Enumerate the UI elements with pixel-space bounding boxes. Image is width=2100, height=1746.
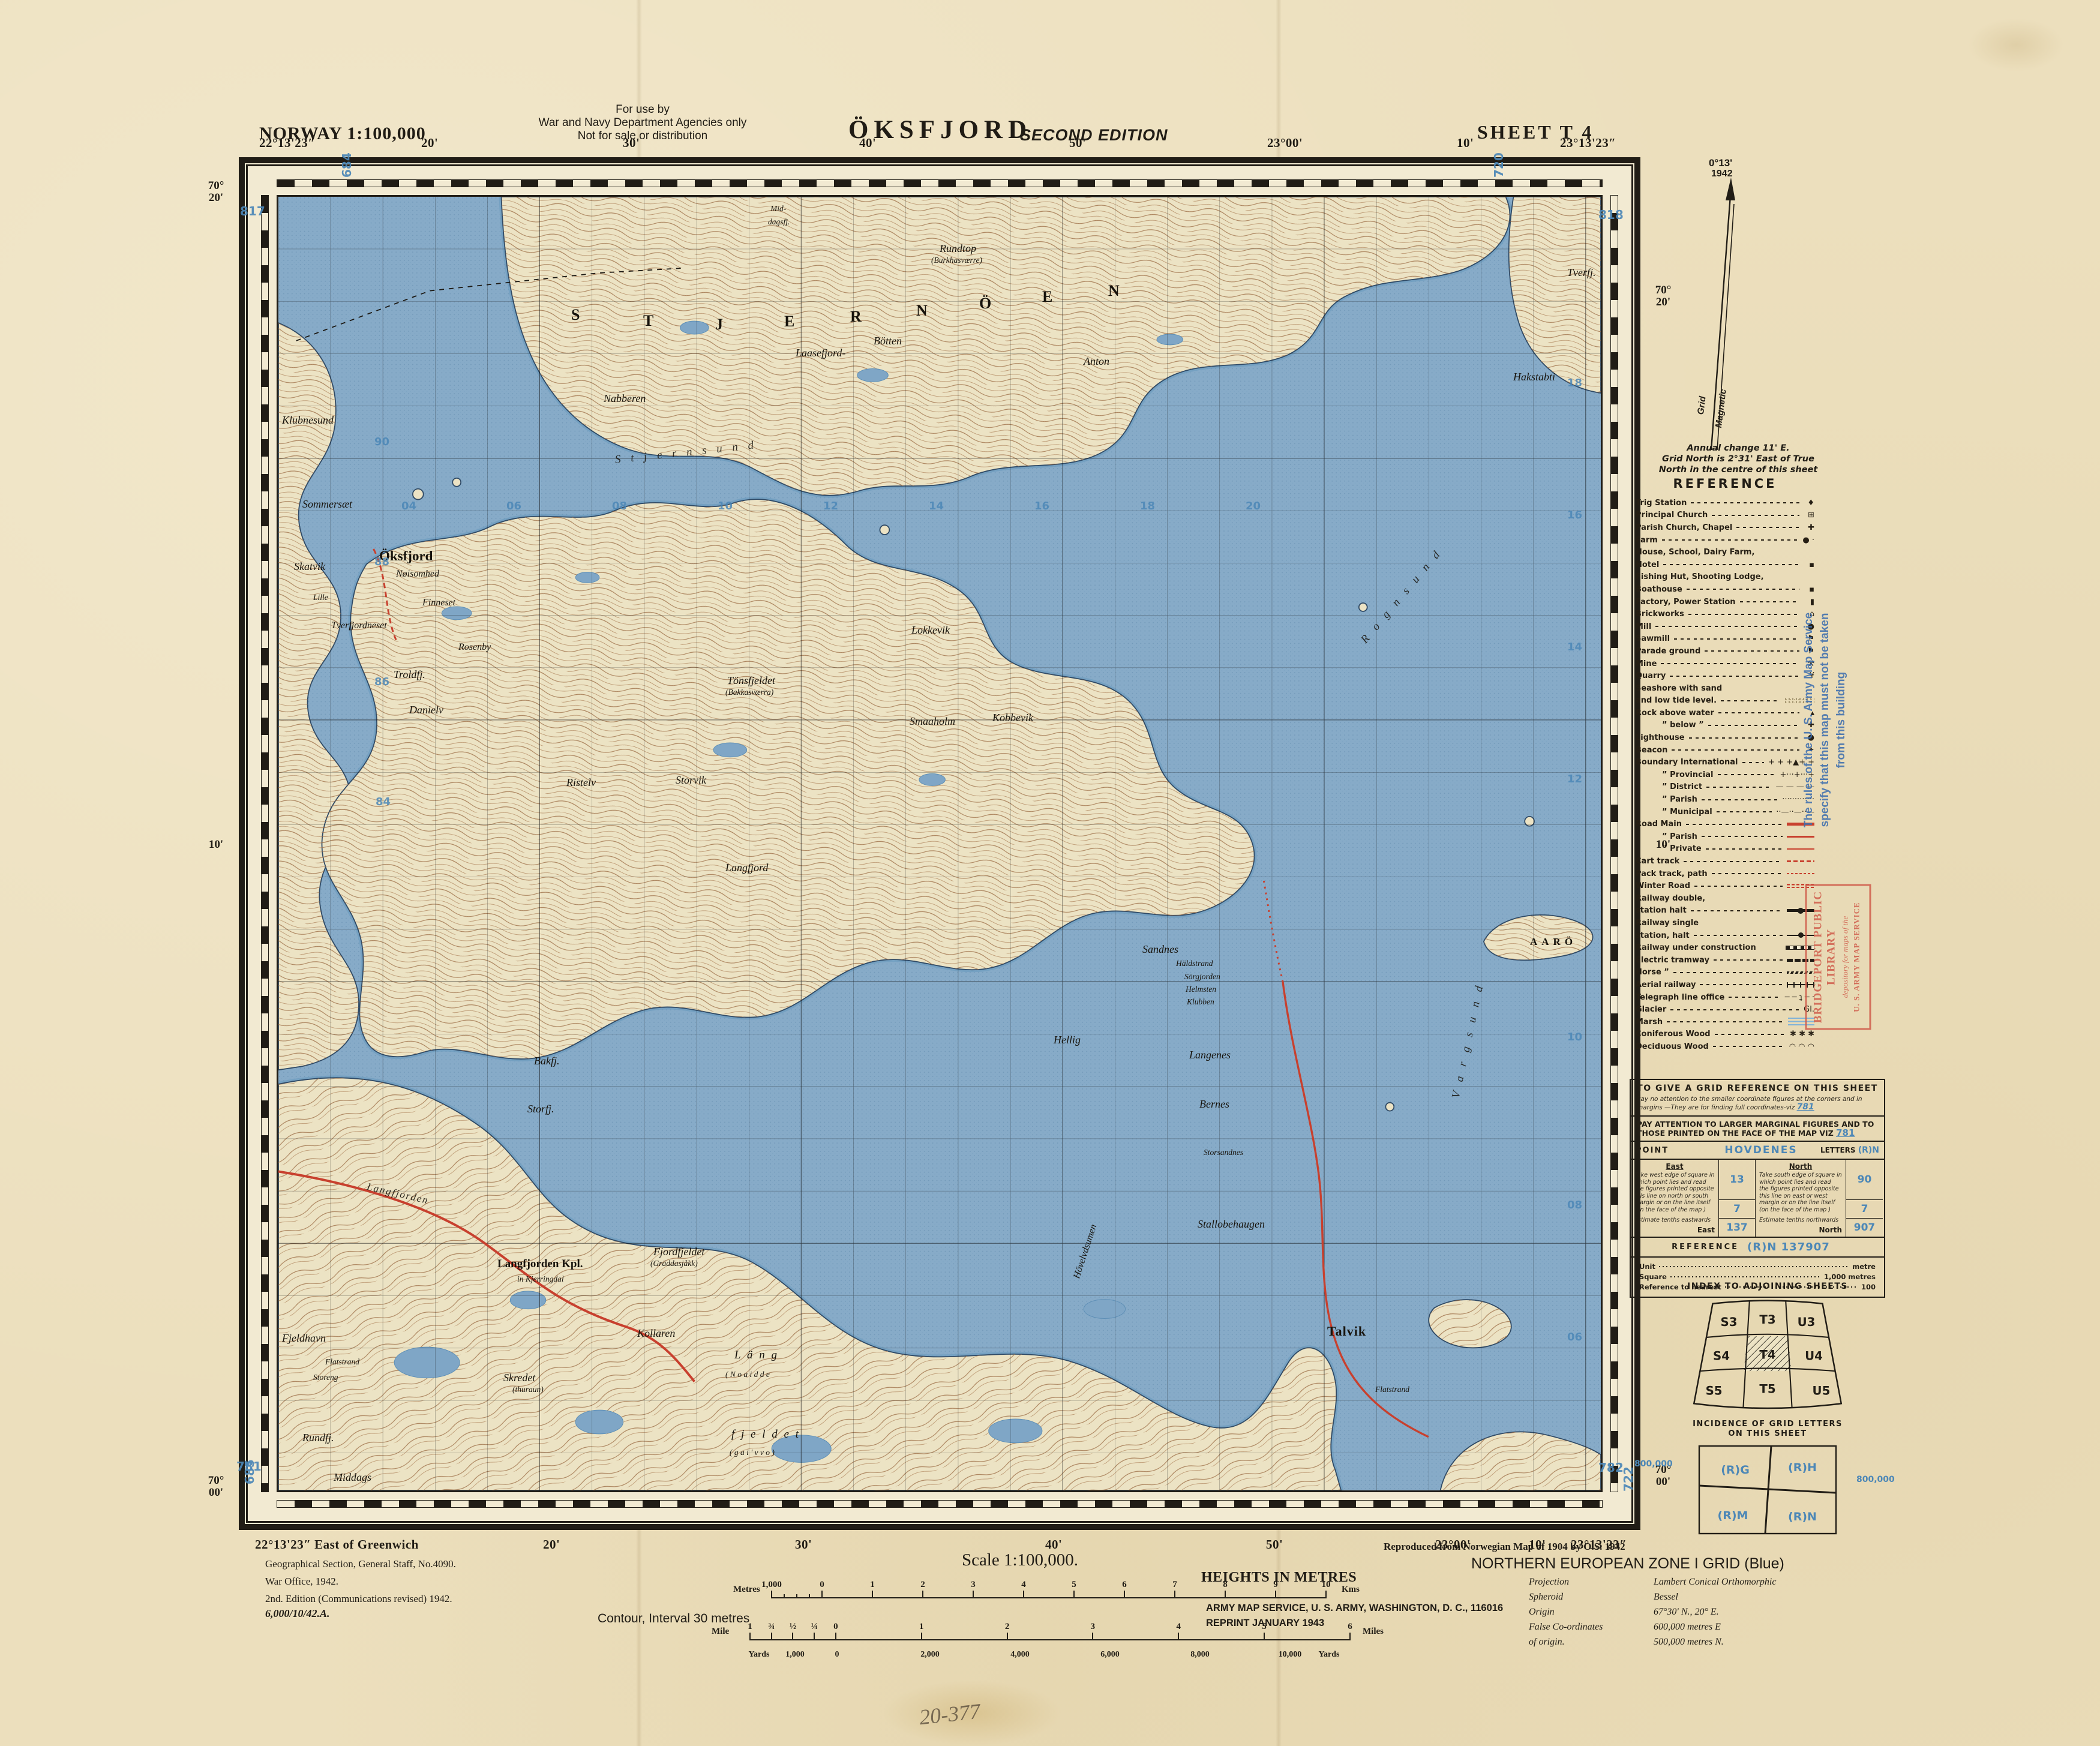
face-grid-number: 90 <box>374 436 389 448</box>
face-grid-number: 14 <box>929 500 944 512</box>
margin-grid-number: 720 <box>1492 152 1506 178</box>
grid-box-note2-number: 781 <box>1836 1127 1855 1138</box>
declination-value: 0°13' <box>1709 157 1732 169</box>
declination-year: 1942 <box>1711 169 1733 179</box>
scale-sub-label: Yards <box>1318 1650 1339 1660</box>
map-label: Laasefjord- <box>796 347 845 359</box>
reference-item: Boundary International+ + +▲+ + <box>1636 756 1814 769</box>
longitude-label-top: 30' <box>623 136 640 151</box>
reference-item: ” District— — — — <box>1636 781 1814 794</box>
map-label: S <box>571 306 580 324</box>
map-label: Rosenby <box>458 642 491 653</box>
map-label: Storvik <box>676 774 706 787</box>
legend-symbol: ⊞ <box>1804 511 1814 520</box>
reference-value: (R)N 137907 <box>1747 1241 1830 1253</box>
incidence-right-value: 800,000 <box>1856 1475 1895 1484</box>
svg-text:(R)H: (R)H <box>1788 1461 1817 1474</box>
gs-line4: 6,000/10/42.A. <box>265 1607 456 1620</box>
reference-item: Marsh <box>1636 1016 1814 1028</box>
margin-grid-number: 781 <box>236 1459 262 1474</box>
face-grid-number: 18 <box>1140 500 1155 512</box>
letters-value: (R)N <box>1858 1145 1879 1155</box>
legend-symbol: ✚ <box>1804 523 1814 532</box>
legend-symbol <box>1787 873 1814 875</box>
scale-tick-label: 7 <box>1172 1580 1177 1590</box>
reference-item: and low tide level. <box>1636 695 1814 707</box>
reference-item: Electric tramway <box>1636 954 1814 967</box>
reference-item: ” Parish <box>1636 830 1814 843</box>
incidence-left-value: 800,000 <box>1634 1459 1673 1469</box>
reference-item: Telegraph line office─ ─ ʇ ─ · <box>1636 991 1814 1004</box>
ams-line1: ARMY MAP SERVICE, U. S. ARMY, WASHINGTON… <box>1206 1601 1503 1616</box>
publisher-note: Geographical Section, General Staff, No.… <box>265 1555 456 1620</box>
legend-symbol: ● · <box>1802 536 1814 545</box>
reference-item: House, School, Dairy Farm, <box>1636 546 1814 559</box>
red-stamp-line2: depository for maps of the <box>1841 886 1850 1028</box>
red-stamp-line3: U. S. ARMY MAP SERVICE <box>1852 886 1862 1028</box>
reference-item: ” below ”✚ <box>1636 719 1814 732</box>
map-label: Langfjord <box>725 862 768 874</box>
margin-grid-number: 782 <box>1598 1460 1624 1475</box>
gs-line2: War Office, 1942. <box>265 1573 456 1590</box>
scale-tick-label: ¼ <box>811 1622 817 1632</box>
index-to-adjoining-sheets: INDEX TO ADJOINING SHEETS S3 T3 U3 S4 T4… <box>1666 1282 1870 1419</box>
ams-imprint: ARMY MAP SERVICE, U. S. ARMY, WASHINGTON… <box>1206 1601 1503 1631</box>
margin-grid-number: 684 <box>340 152 354 178</box>
map-label: Rundtop <box>940 242 976 255</box>
annual-change-line2: Grid North is 2°31' East of True <box>1651 454 1825 464</box>
scale-sub-label: 4,000 <box>1010 1650 1030 1660</box>
map-label: Fjeldhavn <box>282 1332 326 1345</box>
map-label: Flatstrand <box>1375 1385 1409 1394</box>
scale-tick-label: 2 <box>920 1580 925 1590</box>
reference-item: ” Parish············· <box>1636 793 1814 806</box>
minute-ticks-left <box>261 195 269 1492</box>
map-label: Tverfj. <box>1567 266 1596 279</box>
map-label: Langfjorden Kpl. <box>497 1258 583 1271</box>
svg-text:(R)G: (R)G <box>1721 1463 1750 1477</box>
map-label: Hellig <box>1054 1034 1081 1046</box>
reference-item: Trig Station♦ <box>1636 497 1814 509</box>
scale-prefix: Metres <box>733 1585 760 1595</box>
map-label: Bakfj. <box>534 1055 560 1067</box>
map-label: Bernes <box>1199 1098 1229 1111</box>
ams-line2: REPRINT JANUARY 1943 <box>1206 1616 1503 1631</box>
longitude-label-bottom: 50' <box>1266 1537 1283 1552</box>
scale-tick-label: 5 <box>1072 1580 1076 1590</box>
minute-ticks-bottom <box>277 1500 1603 1508</box>
contour-interval-note: Contour, Interval 30 metres <box>598 1612 749 1626</box>
scale-tick-label: 4 <box>1177 1622 1181 1632</box>
longitude-label-top: 23°00' <box>1267 136 1303 151</box>
map-label: Klubnesund <box>282 414 334 427</box>
longitude-label-top: 23°13'23″ <box>1560 136 1616 151</box>
scale-prefix: Mile <box>712 1627 729 1637</box>
scale-sub-label: 2,000 <box>920 1650 940 1660</box>
reference-item: Horse ” <box>1636 967 1814 979</box>
map-label: V a r g s u n d <box>1450 981 1487 1099</box>
svg-text:U5: U5 <box>1813 1384 1831 1398</box>
face-grid-number: 08 <box>612 500 627 512</box>
grid-box-main: East Take west edge of square in which p… <box>1631 1159 1884 1237</box>
scale-sub-label: 8,000 <box>1190 1650 1210 1660</box>
east-instructions: East Take west edge of square in which p… <box>1631 1160 1718 1237</box>
map-label: (thuraun) <box>512 1385 544 1394</box>
scale-sub-label: 1,000 <box>785 1650 805 1660</box>
projection-row: Origin67°30' N., 20° E. <box>1529 1607 1776 1622</box>
projection-row: of origin.500,000 metres N. <box>1529 1637 1776 1652</box>
longitude-label-bottom: 20' <box>543 1537 560 1552</box>
legend-symbol: ◠ ◠ ◠ <box>1789 1042 1814 1051</box>
reference-item: ” Private <box>1636 843 1814 856</box>
paper-sheet: NORWAY 1:100,000 For use by War and Navy… <box>0 0 2100 1746</box>
svg-text:T4: T4 <box>1759 1348 1775 1361</box>
north-instructions: North Take south edge of square in which… <box>1756 1160 1846 1237</box>
reproduction-note: Reproduced from Norwegian Map of 1904 by… <box>1384 1541 1625 1553</box>
incidence-title1: INCIDENCE OF GRID LETTERS <box>1672 1420 1864 1429</box>
map-label: Storeng <box>313 1373 338 1382</box>
latitude-label-left: 70°00' <box>198 1475 234 1499</box>
minute-ticks-top <box>277 179 1603 187</box>
legend-symbol <box>1787 860 1814 863</box>
map-label: N <box>916 302 928 320</box>
map-label: Fjordfjeldet <box>653 1246 704 1258</box>
scale-title: Scale 1:100,000. <box>924 1550 1116 1570</box>
blue-stamp-line3: from this building <box>1833 584 1849 856</box>
minute-ticks-right <box>1610 195 1618 1492</box>
longitude-label-top: 50' <box>1069 136 1086 151</box>
projection-row: SpheroidBessel <box>1529 1592 1776 1607</box>
face-grid-number: 08 <box>1567 1199 1582 1211</box>
reference-item: Parade ground⚑ <box>1636 645 1814 658</box>
restriction-line2: War and Navy Department Agencies only <box>502 116 784 130</box>
reference-item: Factory, Power Station▮ <box>1636 596 1814 608</box>
scale-sub-label: 0 <box>835 1650 839 1660</box>
map-label: ( N o a i d d e <box>725 1370 770 1379</box>
map-label: Mid- <box>770 204 786 214</box>
face-grid-number: 88 <box>374 556 389 568</box>
grid-box-note1-number: 781 <box>1797 1102 1814 1112</box>
map-label: Langenes <box>1189 1049 1231 1061</box>
map-label: Sommersæt <box>302 498 352 511</box>
legend-symbol: ♦ <box>1804 499 1814 508</box>
face-grid-number: 10 <box>718 500 733 512</box>
map-label: f j e l d e t <box>731 1428 800 1441</box>
annual-change-note: Annual change 11' E. Grid North is 2°31'… <box>1651 443 1825 475</box>
scale-sub-label: 6,000 <box>1100 1650 1120 1660</box>
scale-suffix: Kms <box>1342 1585 1360 1595</box>
face-grid-number: 86 <box>374 676 389 688</box>
svg-text:(R)N: (R)N <box>1788 1510 1817 1523</box>
reference-item: GlacierGl. <box>1636 1003 1814 1016</box>
svg-text:T5: T5 <box>1759 1382 1775 1396</box>
map-label: Danielv <box>409 704 443 716</box>
scale-tick-label: ½ <box>790 1622 796 1632</box>
reference-item: station halt <box>1636 905 1814 917</box>
grid-box-title: TO GIVE A GRID REFERENCE ON THIS SHEET <box>1631 1080 1884 1094</box>
point-name: HOVDENES <box>1702 1144 1820 1156</box>
reference-item: Road Main <box>1636 818 1814 830</box>
gs-line1: Geographical Section, General Staff, No.… <box>265 1555 456 1573</box>
reference-item: Railway double, <box>1636 892 1814 905</box>
map-label: Sörgjorden <box>1184 972 1220 982</box>
map-label: Rundfj. <box>302 1432 334 1444</box>
annual-change-line3: North in the centre of this sheet <box>1651 464 1825 475</box>
legend-symbol: ▪ <box>1804 560 1814 569</box>
map-label: R <box>850 308 862 326</box>
scale-tick-label: 6 <box>1122 1580 1127 1590</box>
reference-item: Sawmill⚑ <box>1636 633 1814 646</box>
longitude-label-bottom: 30' <box>795 1537 812 1552</box>
scale-tick-label: 1,000 <box>761 1580 782 1590</box>
map-label: S t j e r n s u n d <box>614 439 758 467</box>
map-label: Ö <box>979 295 991 313</box>
reference-item: Parish Church, Chapel✚ <box>1636 521 1814 534</box>
grid-reference-box: TO GIVE A GRID REFERENCE ON THIS SHEET P… <box>1630 1079 1885 1298</box>
map-label: E <box>784 313 794 331</box>
army-map-service-stamp: The rules of the U. S. Army Map Service … <box>1801 584 1858 856</box>
svg-text:U3: U3 <box>1798 1315 1816 1329</box>
map-label: Tönsfjeldet <box>727 674 775 687</box>
svg-text:S4: S4 <box>1713 1349 1730 1363</box>
reference-items: Trig Station♦Principal Church⊞Parish Chu… <box>1636 497 1814 1053</box>
scale-tick-label: 3 <box>1091 1622 1096 1632</box>
reference-item: Lighthouse● <box>1636 731 1814 744</box>
map-content: STJERNÖENMid-dagsfj.KlubnesundSommersætS… <box>277 195 1603 1492</box>
scale-sub-label: 10,000 <box>1279 1650 1302 1660</box>
face-grid-number: 84 <box>376 796 391 808</box>
red-stamp-line1: BRIDGEPORT PUBLIC LIBRARY <box>1812 886 1838 1028</box>
map-label: (Bakkasværra) <box>725 688 773 697</box>
face-grid-number: 16 <box>1034 500 1049 512</box>
map-label: Ristelv <box>566 776 596 789</box>
svg-text:U4: U4 <box>1805 1349 1823 1363</box>
scale-sub-label: Yards <box>748 1650 769 1660</box>
margin-grid-number: 722 <box>1621 1466 1636 1492</box>
east-values: 13 7 137 <box>1718 1160 1756 1237</box>
face-grid-number: 18 <box>1567 377 1582 389</box>
map-frame: STJERNÖENMid-dagsfj.KlubnesundSommersætS… <box>239 157 1640 1530</box>
scale-tick-label: 3 <box>971 1580 976 1590</box>
map-label: Kollaren <box>637 1327 675 1340</box>
map-label: in Kjerringdal <box>517 1274 564 1284</box>
blue-stamp-line1: The rules of the U. S. Army Map Service <box>1801 584 1817 856</box>
legend-symbol: ✱ ✱ ✱ <box>1790 1030 1814 1039</box>
paper-stain <box>1968 18 2064 72</box>
grid-zone-title: NORTHERN EUROPEAN ZONE I GRID (Blue) <box>1471 1555 1784 1573</box>
margin-grid-number: 817 <box>240 204 265 218</box>
reference-item: Beacon✦ <box>1636 744 1814 757</box>
reference-item: Boathouse▪ <box>1636 583 1814 596</box>
reference-item: ” Municipal··—··—··— <box>1636 806 1814 818</box>
longitude-label-top: 10' <box>1457 136 1474 151</box>
latitude-label-left: 10' <box>198 839 234 851</box>
map-label: Klubben <box>1187 997 1214 1007</box>
incidence-title2: ON THIS SHEET <box>1672 1429 1864 1439</box>
longitude-label-top: 20' <box>421 136 438 151</box>
scale-tick-label: 4 <box>1021 1580 1026 1590</box>
projection-table: ProjectionLambert Conical OrthomorphicSp… <box>1529 1577 1776 1652</box>
map-label: Nabberen <box>604 392 646 405</box>
map-label: AARÖ <box>1530 936 1577 948</box>
map-label: Häldstrand <box>1176 959 1213 968</box>
longitude-label-bottom: 22°13'23″ East of Greenwich <box>255 1537 419 1552</box>
map-label: Storsandnes <box>1204 1148 1243 1157</box>
heights-note: HEIGHTS IN METRES <box>1201 1570 1357 1586</box>
map-label: R o g n s u n d <box>1358 546 1445 646</box>
reference-item: Coniferous Wood✱ ✱ ✱ <box>1636 1028 1814 1041</box>
map-label: Tverfjordneset <box>331 620 387 631</box>
restriction-line1: For use by <box>502 103 784 116</box>
grid-box-reference-row: REFERENCE (R)N 137907 <box>1631 1237 1884 1256</box>
blue-stamp-line2: specify that this map must not be taken <box>1817 584 1833 856</box>
face-grid-number: 06 <box>1567 1331 1582 1343</box>
face-grid-number: 16 <box>1567 509 1582 521</box>
map-label: Talvik <box>1327 1324 1366 1339</box>
map-label: E <box>1042 288 1052 306</box>
map-label: Bötten <box>874 335 902 347</box>
library-depository-stamp: BRIDGEPORT PUBLIC LIBRARY depository for… <box>1805 884 1871 1030</box>
reference-item: Deciduous Wood◠ ◠ ◠ <box>1636 1040 1814 1053</box>
scale-tick-label: 1 <box>870 1580 875 1590</box>
map-label: T <box>643 312 653 330</box>
reference-item: Winter Road <box>1636 880 1814 892</box>
reference-item: Aerial railway <box>1636 979 1814 991</box>
map-label: Finneset <box>422 598 455 608</box>
reference-title: REFERENCE <box>1636 476 1814 491</box>
map-label: Lille <box>313 593 328 602</box>
edition-label: SECOND EDITION <box>1020 126 1168 145</box>
grid-box-note1: Pay no attention to the smaller coordina… <box>1631 1094 1884 1115</box>
point-label: POINT <box>1636 1146 1702 1155</box>
reference-item: Cart track <box>1636 855 1814 868</box>
map-label: Flatstrand <box>325 1357 359 1367</box>
map-label: J <box>715 316 723 334</box>
map-sheet-scan: { "header": { "series": "NORWAY 1:100,00… <box>0 0 2100 1746</box>
map-label: ( g a i ' v v o ) <box>730 1448 775 1457</box>
svg-text:T3: T3 <box>1759 1313 1775 1327</box>
restriction-note: For use by War and Navy Department Agenc… <box>502 103 784 143</box>
scale-tick-label: 1 <box>748 1622 752 1632</box>
reference-item: Railway under construction <box>1636 941 1814 954</box>
projection-row: ProjectionLambert Conical Orthomorphic <box>1529 1577 1776 1592</box>
map-label: Stallobehaugen <box>1198 1218 1265 1231</box>
north-values: 90 7 907 <box>1846 1160 1883 1237</box>
face-grid-number: 12 <box>823 500 838 512</box>
scale-tick-label: ¾ <box>768 1622 775 1632</box>
map-label: (Gräddasjåkk) <box>650 1259 698 1268</box>
reference-legend: REFERENCE Trig Station♦Principal Church⊞… <box>1636 476 1814 1053</box>
reference-item: Principal Church⊞ <box>1636 509 1814 522</box>
map-label: Lokkevik <box>911 624 950 637</box>
scale-tick-label: 1 <box>919 1622 924 1632</box>
reference-item: Brickworks⌂ <box>1636 608 1814 620</box>
map-label: Anton <box>1084 355 1109 368</box>
map-label: Hakstabti <box>1513 371 1555 383</box>
map-label: tuva <box>348 1487 367 1492</box>
reference-item: Mine⚒ <box>1636 658 1814 670</box>
index-title: INDEX TO ADJOINING SHEETS <box>1666 1282 1870 1291</box>
grid-box-point-row: POINT HOVDENES LETTERS (R)N <box>1631 1141 1884 1159</box>
reference-item: Rock above water▴ <box>1636 707 1814 719</box>
map-label: dagsfj. <box>768 217 790 227</box>
map-label: Storfj. <box>527 1103 554 1115</box>
face-grid-number: 12 <box>1567 773 1582 785</box>
face-grid-number: 14 <box>1567 641 1582 653</box>
scale-tick-label: 0 <box>833 1622 838 1632</box>
reference-item: station, halt <box>1636 929 1814 942</box>
map-place-labels: STJERNÖENMid-dagsfj.KlubnesundSommersætS… <box>278 197 1601 1490</box>
map-label: Kobbevik <box>992 712 1033 724</box>
margin-grid-number: 818 <box>1598 208 1624 222</box>
svg-text:(R)M: (R)M <box>1718 1509 1748 1522</box>
reference-item: Mill● <box>1636 620 1814 633</box>
map-label: Skatvik <box>294 560 325 573</box>
map-label: Hövelvdsumen <box>1072 1223 1099 1280</box>
map-label: L ä n g <box>734 1349 779 1362</box>
map-label: N <box>1108 282 1120 300</box>
map-label: (Burkhasværre) <box>931 256 982 265</box>
margin-band: STJERNÖENMid-dagsfj.KlubnesundSommersætS… <box>246 164 1633 1523</box>
map-label: Helmsten <box>1186 985 1216 994</box>
map-label: Langfjorden <box>366 1181 430 1207</box>
index-diagram: S3 T3 U3 S4 T4 U4 S5 T5 U5 <box>1669 1291 1867 1416</box>
annual-change-line1: Annual change 11' E. <box>1651 443 1825 454</box>
reference-item: Quarry¥ <box>1636 670 1814 682</box>
grid-box-note2: PAY ATTENTION TO LARGER MARGINAL FIGURES… <box>1631 1115 1884 1141</box>
map-label: Skredet <box>503 1372 535 1384</box>
face-grid-number: 04 <box>401 500 416 512</box>
reference-item: Hotel▪ <box>1636 559 1814 571</box>
reference-item: Farm● · <box>1636 534 1814 547</box>
map-label: Smaaholm <box>910 715 955 728</box>
reference-item: Seashore with sand <box>1636 682 1814 695</box>
map-label: Troldfj. <box>394 668 425 681</box>
reference-item: ” Provincial+···+···+ <box>1636 769 1814 781</box>
scale-tick-label: 2 <box>1005 1622 1010 1632</box>
reference-item: Railway single <box>1636 917 1814 929</box>
incidence-diagram: (R)G (R)H (R)M (R)N <box>1696 1442 1840 1537</box>
pencil-annotation: 20-377 <box>918 1699 982 1730</box>
letters-label: LETTERS (R)N <box>1820 1145 1879 1155</box>
svg-text:S5: S5 <box>1706 1384 1723 1398</box>
map-label: Middags <box>334 1471 371 1484</box>
longitude-label-top: 40' <box>859 136 876 151</box>
scale-tick-label: 0 <box>820 1580 824 1590</box>
reference-label: REFERENCE <box>1637 1243 1747 1252</box>
longitude-label-top: 22°13'23″ <box>259 136 315 151</box>
face-grid-number: 06 <box>506 500 521 512</box>
map-label: Sandnes <box>1142 943 1178 956</box>
face-grid-number: 10 <box>1567 1031 1582 1043</box>
map-label: Nøisomhed <box>396 569 439 580</box>
latitude-label-left: 70°20' <box>198 180 234 204</box>
gs-line3: 2nd. Edition (Communications revised) 19… <box>265 1590 456 1607</box>
projection-row: False Co-ordinates600,000 metres E <box>1529 1622 1776 1637</box>
svg-text:S3: S3 <box>1721 1315 1738 1329</box>
reference-item: Pack track, path <box>1636 868 1814 880</box>
face-grid-number: 20 <box>1246 500 1261 512</box>
reference-item: Fishing Hut, Shooting Lodge, <box>1636 571 1814 584</box>
restriction-line3: Not for sale or distribution <box>502 130 784 143</box>
incidence-of-grid-letters: INCIDENCE OF GRID LETTERS ON THIS SHEET … <box>1672 1420 1864 1540</box>
